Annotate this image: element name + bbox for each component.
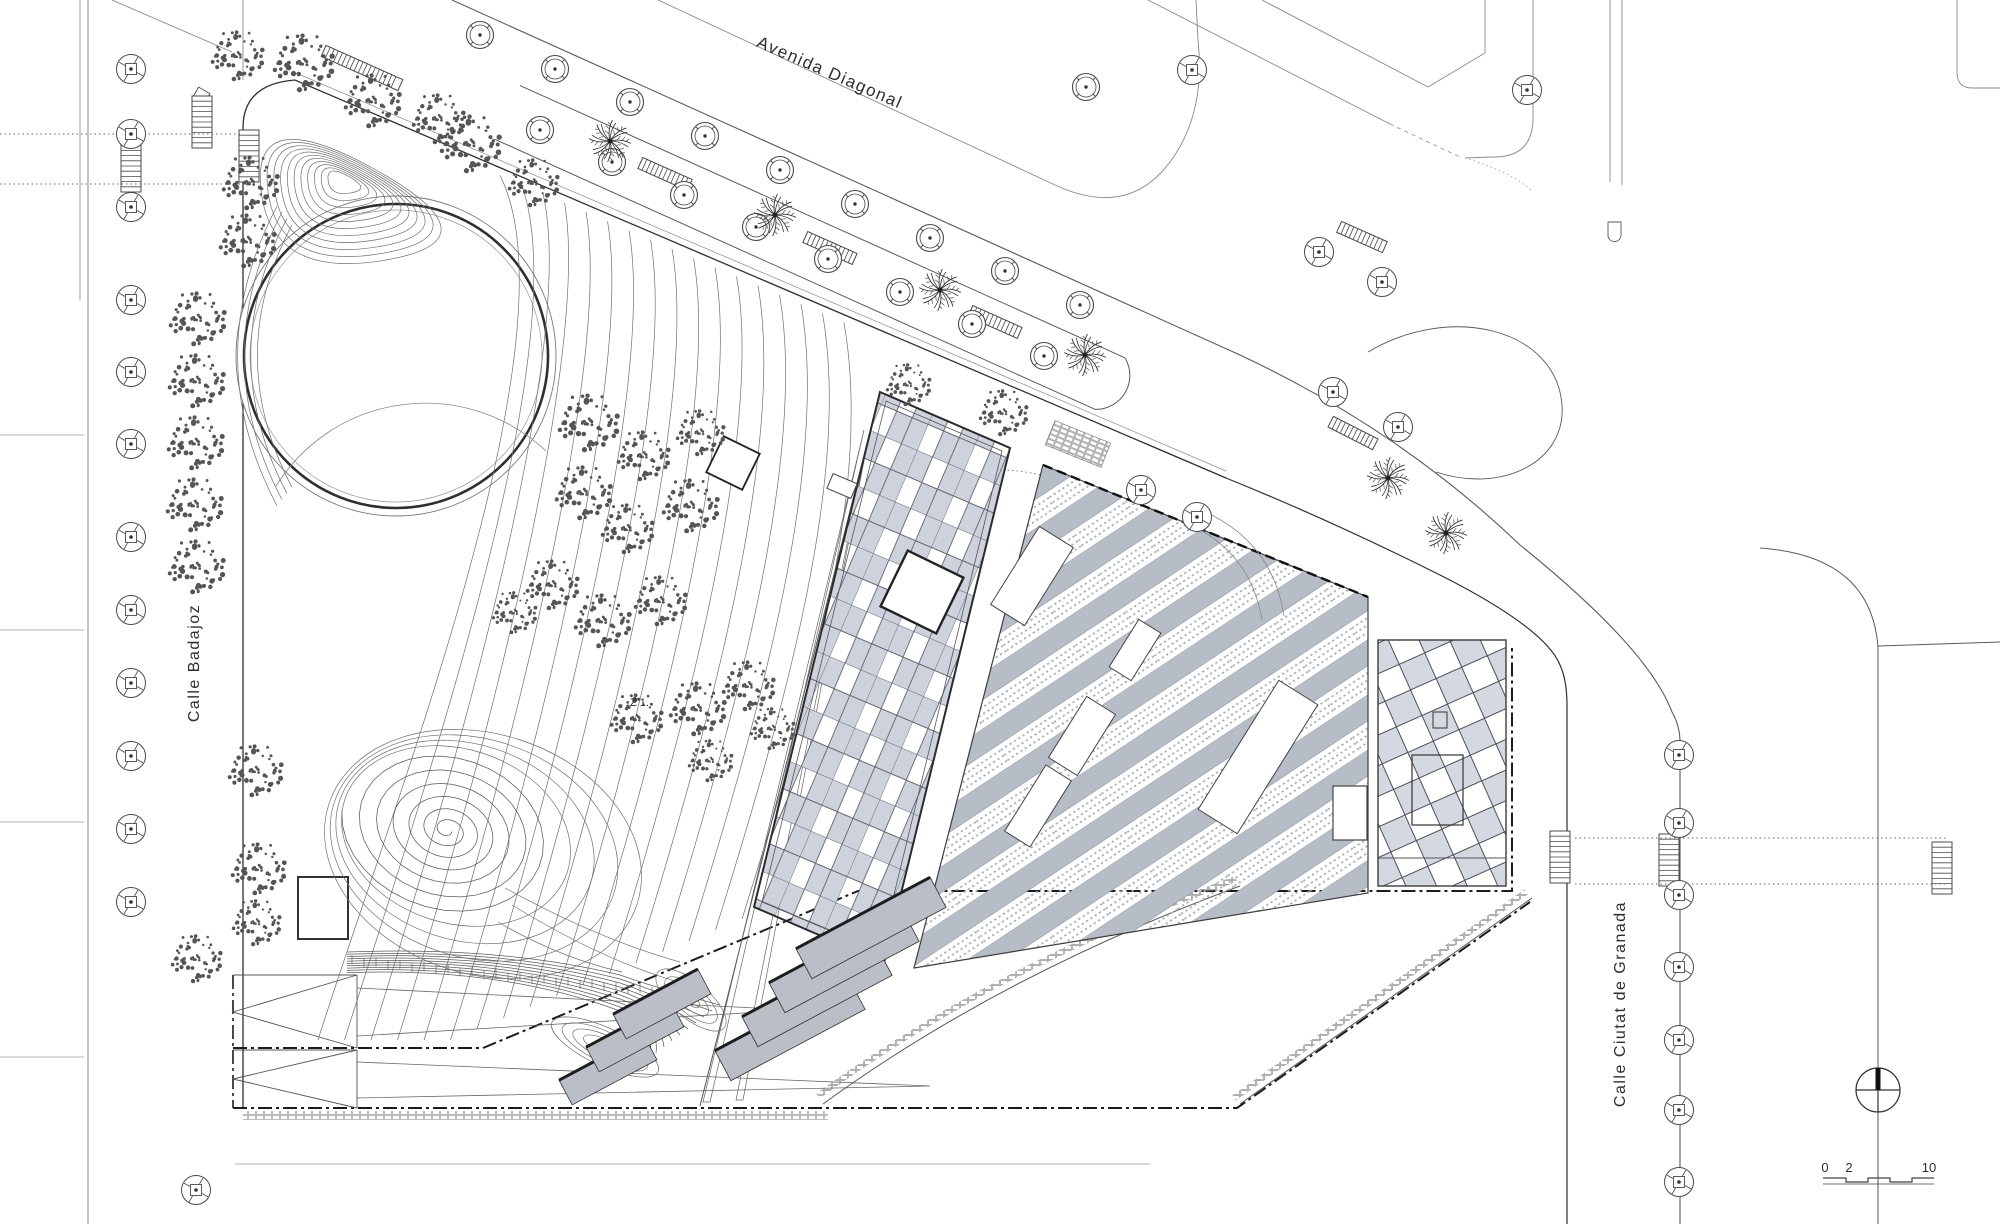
zone-label: Z 1. xyxy=(630,697,649,709)
avenue-label: Avenida Diagonal xyxy=(754,32,906,112)
street-network xyxy=(0,0,2000,1224)
street-right-label: Calle Ciutat de Granada xyxy=(1612,901,1629,1107)
scale-label-10: 10 xyxy=(1922,1160,1936,1175)
topographic-contours xyxy=(236,139,851,1088)
street-left-label: Calle Badajoz xyxy=(186,604,203,722)
north-arrow xyxy=(1856,1068,1900,1112)
scale-label-0: 0 xyxy=(1821,1160,1828,1175)
site-plan-svg: Avenida Diagonal Calle Badajoz Calle Ciu… xyxy=(0,0,2000,1224)
building-complex xyxy=(559,392,1506,1106)
site-plan-page: Avenida Diagonal Calle Badajoz Calle Ciu… xyxy=(0,0,2000,1224)
scale-label-2: 2 xyxy=(1845,1160,1852,1175)
